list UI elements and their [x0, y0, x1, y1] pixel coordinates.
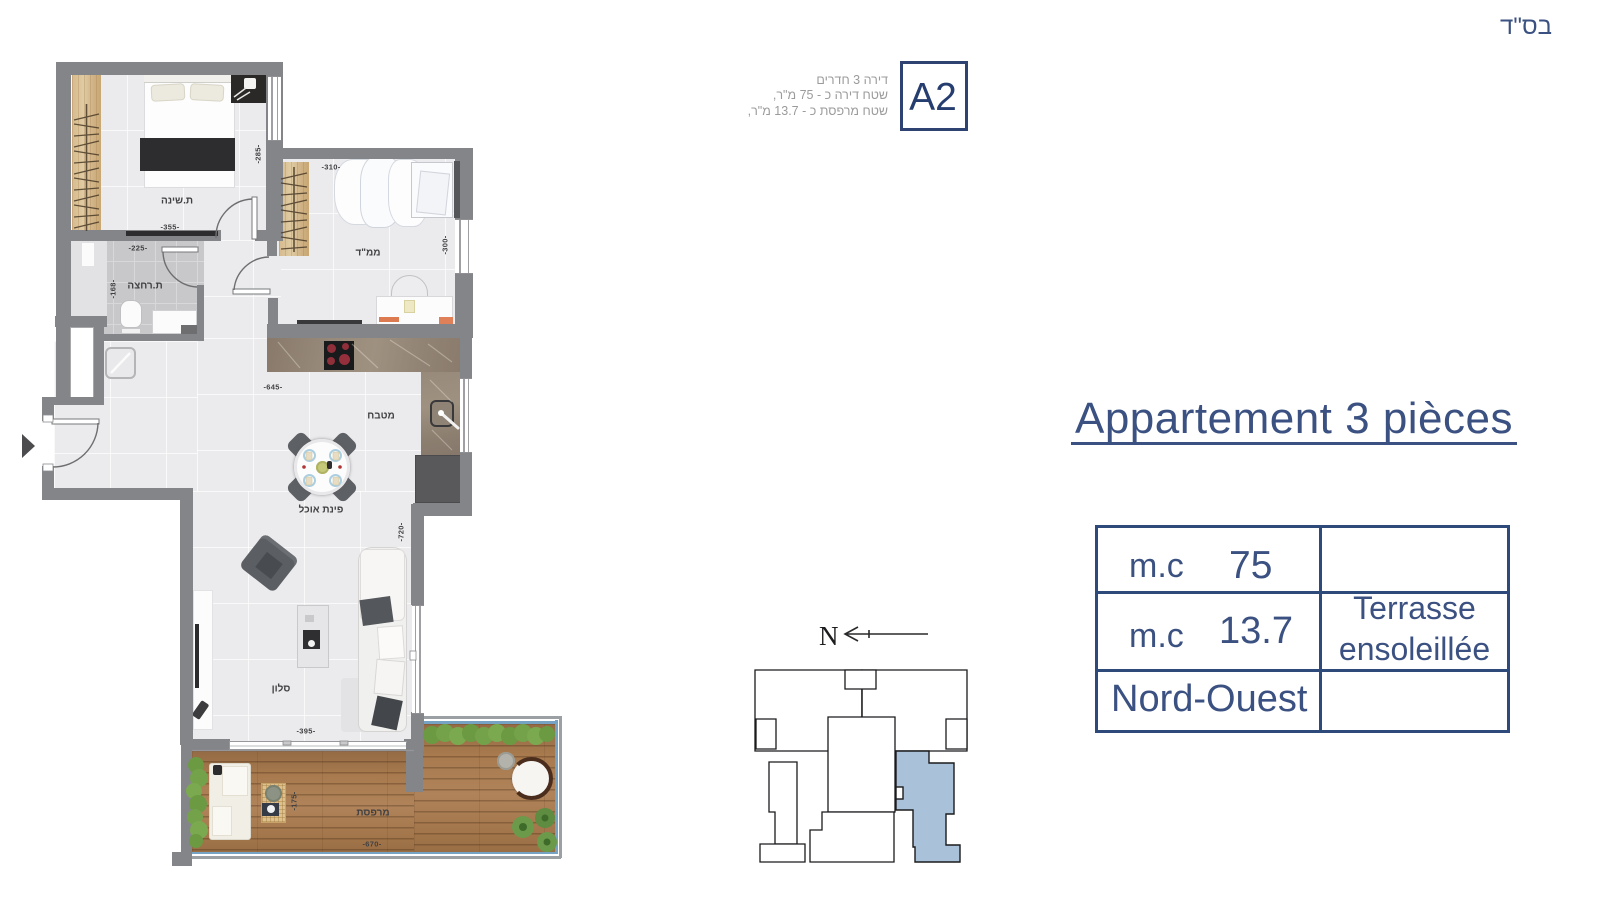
- svg-text:N: N: [819, 621, 839, 651]
